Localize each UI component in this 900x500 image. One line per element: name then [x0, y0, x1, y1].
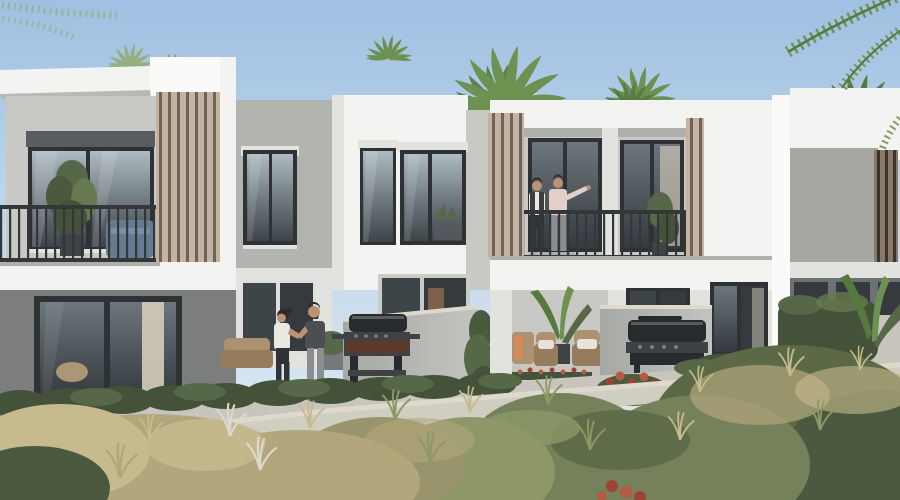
balcony-slab-shadow: [0, 262, 160, 266]
balcony-d-railing[interactable]: [524, 210, 686, 259]
house-e-grey-wall: [790, 148, 878, 272]
house-c-edge-shade: [332, 95, 344, 290]
louvre-screen-a: [156, 92, 220, 262]
louvre-screen-d-left: [488, 113, 524, 258]
window-c2: [398, 142, 468, 245]
house-a: [0, 57, 236, 426]
house-d-door-2[interactable]: [710, 282, 768, 356]
house-d-parapet-shadow: [490, 256, 772, 260]
patio-d-chair-2: [572, 330, 602, 366]
louvre-screen-e: [874, 150, 898, 262]
window-c1: [358, 140, 398, 245]
wicker-sofa: [224, 338, 270, 352]
window-b1: [241, 146, 299, 249]
house-a-corner-column: [220, 57, 236, 290]
patio-d-chair-1: [534, 332, 558, 366]
louvre-screen-d-right: [686, 118, 704, 258]
balcony-a-railing[interactable]: [0, 205, 160, 262]
privacy-wall-d-cap: [600, 305, 712, 309]
balcony-a-shutter-box: [26, 131, 155, 147]
house-a-fascia: [0, 66, 150, 94]
patio-d: [512, 286, 608, 380]
rendering-image: Modern townhouse community — exterior ar…: [0, 0, 900, 500]
townhouse-scene: Modern townhouse community — exterior ar…: [0, 0, 900, 500]
house-a-mid-band: [0, 262, 236, 290]
wicker-sofa-seat: [221, 350, 273, 368]
patio-d-sofa-orange: [512, 332, 534, 364]
